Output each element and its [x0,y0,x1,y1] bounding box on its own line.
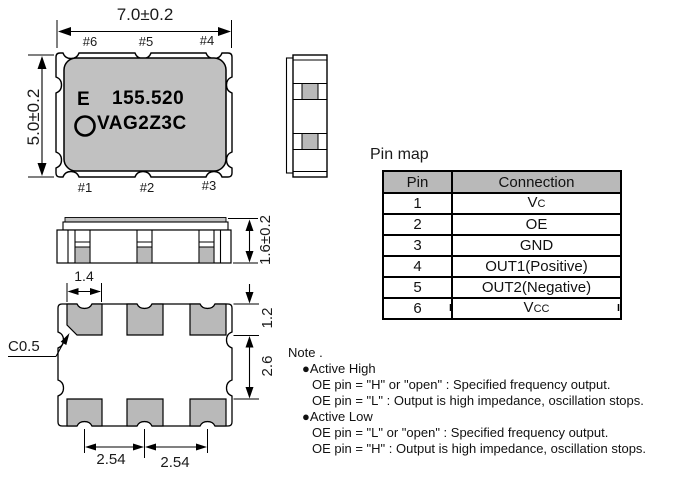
bottom-view-drawing [8,283,259,458]
note-line: OE pin = "L" or "open" : Specified frequ… [288,425,646,441]
note-title: Note . [288,345,646,361]
connection-cell: GND [452,235,621,256]
connection-cell: OE [452,214,621,235]
pin-map-header-row: Pin Connection [383,171,621,193]
note-line: OE pin = "H" or "open" : Specified frequ… [288,377,646,393]
dim-package-height: 5.0±0.2 [24,82,42,152]
dim-thickness: 1.6±0.2 [257,205,273,275]
pin-map-row: 3GND [383,235,621,256]
pin-map-row: 2OE [383,214,621,235]
datasheet-drawing-page: 7.0±0.2 5.0±0.2 #6 #5 #4 #1 #2 #3 E 155.… [0,0,677,482]
note-section-label: ●Active High [288,361,646,377]
pin-label-2: #2 [140,180,154,195]
side-view-pad [302,134,318,150]
pin-number-cell: 5 [383,277,452,298]
note-line: OE pin = "H" : Output is high impedance,… [288,441,646,457]
front-view-drawing [57,218,258,264]
note-sections: ●Active HighOE pin = "H" or "open" : Spe… [288,361,646,457]
pin-label-6: #6 [83,34,97,49]
note-section-label: ●Active Low [288,409,646,425]
marking-letter: E [77,89,90,111]
pin-map-row: 1VC [383,193,621,214]
pin-column-header: Pin [383,171,452,193]
connection-column-header: Connection [452,171,621,193]
pin-number-cell: 6 [383,298,452,319]
pin-number-cell: 4 [383,256,452,277]
side-view-pad [302,84,318,100]
pin-map-row: 4OUT1(Positive) [383,256,621,277]
marking-code: VAG2Z3C [97,113,187,135]
pin-map-title: Pin map [370,146,429,164]
dim-pad-width: 1.4 [74,268,93,284]
dim-pitch-right: 2.54 [160,454,189,471]
connection-cell: OUT1(Positive) [452,256,621,277]
dim-pitch-left: 2.54 [96,451,125,468]
dim-chamfer: C0.5 [8,338,40,355]
pin-label-4: #4 [200,33,214,48]
note-block: Note . ●Active HighOE pin = "H" or "open… [288,345,646,457]
pin-map-table: Pin Connection 1VC2OE3GND4OUT1(Positive)… [382,170,622,320]
note-line: OE pin = "L" : Output is high impedance,… [288,393,646,409]
pin-label-5: #5 [139,34,153,49]
pin-number-cell: 2 [383,214,452,235]
side-view-body [293,55,327,177]
connection-cell: VCC [452,298,621,319]
side-view-drawing [287,55,328,177]
pin-number-cell: 1 [383,193,452,214]
dim-pad-gap: 2.6 [259,332,275,400]
pin-number-cell: 3 [383,235,452,256]
front-view-lid [65,218,226,223]
connection-cell: VC [452,193,621,214]
connection-cell: OUT2(Negative) [452,277,621,298]
pin-map-body: 1VC2OE3GND4OUT1(Positive)5OUT2(Negative)… [383,193,621,319]
dim-package-width: 7.0±0.2 [117,5,174,25]
pin-label-3: #3 [202,178,216,193]
marking-frequency: 155.520 [112,88,184,110]
pin-map-row: 5OUT2(Negative) [383,277,621,298]
pin-label-1: #1 [78,180,92,195]
pin-map-row: 6VCC [383,298,621,319]
